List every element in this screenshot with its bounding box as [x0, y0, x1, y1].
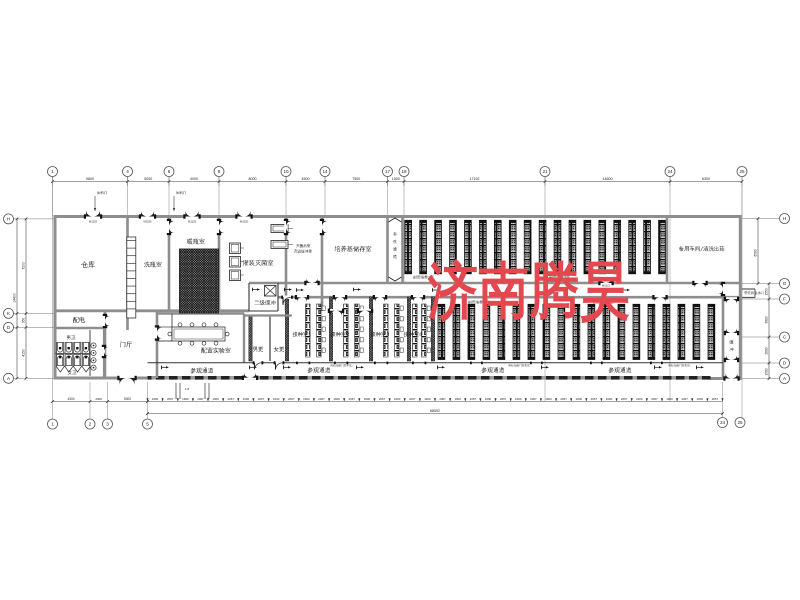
svg-text:2067: 2067 — [228, 397, 235, 401]
svg-text:1600: 1600 — [454, 397, 461, 401]
svg-text:24: 24 — [720, 420, 726, 425]
svg-text:1600: 1600 — [666, 397, 673, 401]
svg-text:2067: 2067 — [439, 397, 446, 401]
svg-text:1600: 1600 — [606, 397, 613, 401]
svg-text:2067: 2067 — [591, 397, 598, 401]
svg-text:4000: 4000 — [190, 177, 198, 181]
svg-text:7200: 7200 — [22, 262, 26, 270]
svg-text:M1525: M1525 — [188, 220, 196, 224]
svg-text:1600: 1600 — [333, 397, 340, 401]
svg-text:10: 10 — [283, 169, 289, 174]
svg-text:1550: 1550 — [765, 288, 769, 295]
svg-text:2067: 2067 — [288, 397, 295, 401]
svg-text:24: 24 — [667, 169, 673, 174]
svg-text:2067: 2067 — [712, 397, 719, 401]
svg-text:950: 950 — [22, 318, 26, 324]
svg-text:5000: 5000 — [124, 397, 131, 401]
svg-text:2067: 2067 — [470, 397, 477, 401]
svg-text:6300: 6300 — [702, 177, 710, 181]
svg-text:1600: 1600 — [545, 397, 552, 401]
svg-text:1600: 1600 — [364, 397, 371, 401]
svg-text:21: 21 — [542, 169, 548, 174]
svg-text:1600: 1600 — [636, 397, 643, 401]
svg-text:17192: 17192 — [470, 177, 480, 181]
svg-text:4300: 4300 — [67, 397, 74, 401]
svg-text:7500: 7500 — [352, 177, 360, 181]
svg-text:2067: 2067 — [681, 397, 688, 401]
svg-text:2067: 2067 — [621, 397, 628, 401]
svg-text:25: 25 — [737, 420, 743, 425]
svg-text:5000: 5000 — [144, 177, 152, 181]
svg-text:14400: 14400 — [13, 293, 17, 303]
svg-text:1600: 1600 — [182, 397, 189, 401]
svg-text:M1525: M1525 — [89, 220, 97, 224]
svg-text:2067: 2067 — [530, 397, 537, 401]
svg-text:2000: 2000 — [95, 397, 102, 401]
svg-text:1600: 1600 — [424, 397, 431, 401]
svg-text:1600: 1600 — [303, 397, 310, 401]
svg-text:2600: 2600 — [765, 347, 769, 354]
svg-text:1600: 1600 — [152, 397, 159, 401]
svg-text:1:8: 1:8 — [185, 387, 190, 391]
svg-text:9800: 9800 — [86, 177, 94, 181]
svg-text:2067: 2067 — [500, 397, 507, 401]
svg-text:2067: 2067 — [197, 397, 204, 401]
svg-text:M1521: M1521 — [602, 284, 610, 288]
svg-text:25: 25 — [739, 169, 745, 174]
svg-text:M1525: M1525 — [144, 220, 152, 224]
svg-text:1500: 1500 — [765, 368, 769, 375]
svg-text:2067: 2067 — [349, 397, 356, 401]
svg-text:1600: 1600 — [273, 397, 280, 401]
svg-text:1500: 1500 — [392, 177, 400, 181]
svg-text:2: 2 — [89, 422, 92, 427]
svg-text:8000: 8000 — [249, 177, 257, 181]
svg-text:F: F — [783, 297, 786, 302]
svg-text:2067: 2067 — [651, 397, 658, 401]
svg-text:H: H — [7, 217, 10, 222]
svg-text:68592: 68592 — [430, 409, 440, 413]
svg-text:5: 5 — [146, 422, 149, 427]
svg-text:2067: 2067 — [318, 397, 325, 401]
svg-text:2067: 2067 — [167, 397, 174, 401]
svg-text:4500: 4500 — [302, 177, 310, 181]
svg-text:8: 8 — [218, 169, 221, 174]
svg-text:18: 18 — [401, 169, 407, 174]
svg-text:3: 3 — [106, 422, 109, 427]
svg-text:2067: 2067 — [379, 397, 386, 401]
svg-text:2067: 2067 — [409, 397, 416, 401]
svg-text:14600: 14600 — [603, 177, 613, 181]
svg-text:1600: 1600 — [485, 397, 492, 401]
svg-text:1600: 1600 — [394, 397, 401, 401]
svg-text:2067: 2067 — [560, 397, 567, 401]
svg-text:1600: 1600 — [576, 397, 583, 401]
svg-text:1600: 1600 — [697, 397, 704, 401]
svg-text:2067: 2067 — [258, 397, 265, 401]
svg-text:4150: 4150 — [22, 349, 26, 357]
svg-text:1: 1 — [51, 422, 54, 427]
svg-text:6: 6 — [168, 169, 171, 174]
svg-text:1600: 1600 — [515, 397, 522, 401]
svg-text:G: G — [783, 281, 787, 286]
svg-text:M1525: M1525 — [240, 220, 248, 224]
svg-text:17: 17 — [385, 169, 391, 174]
svg-text:H: H — [783, 216, 786, 221]
svg-text:14: 14 — [322, 169, 328, 174]
svg-text:6500: 6500 — [754, 249, 758, 256]
svg-text:1600: 1600 — [212, 397, 219, 401]
svg-text:4: 4 — [126, 169, 129, 174]
svg-text:1: 1 — [51, 169, 54, 174]
svg-text:3800: 3800 — [765, 316, 769, 323]
svg-text:1600: 1600 — [243, 397, 250, 401]
